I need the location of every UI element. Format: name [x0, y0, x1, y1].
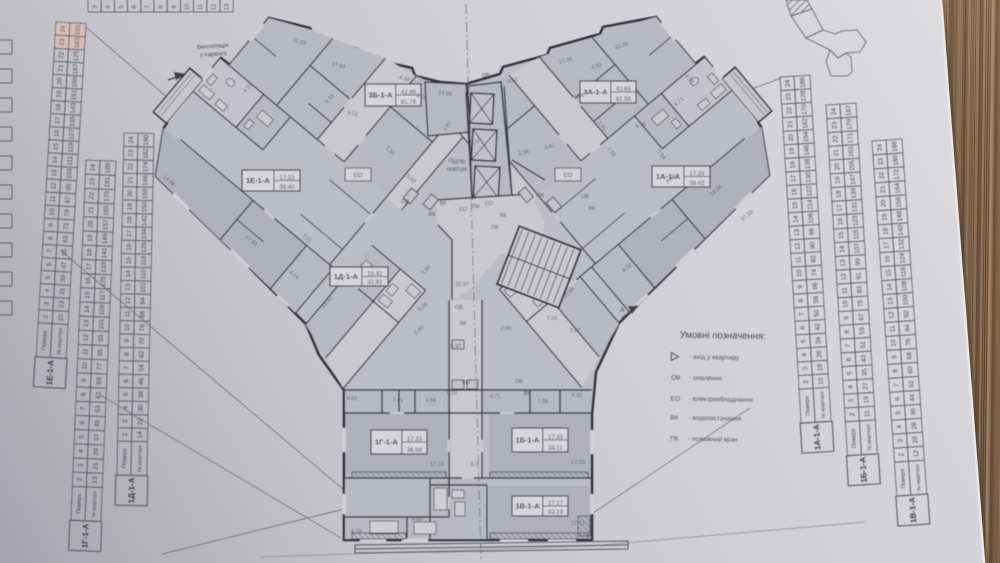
- svg-text:12: 12: [794, 242, 801, 250]
- svg-text:10: 10: [818, 377, 825, 385]
- svg-text:19: 19: [56, 90, 63, 98]
- svg-text:116: 116: [900, 266, 908, 277]
- svg-text:18: 18: [86, 248, 93, 256]
- svg-text:10: 10: [796, 269, 803, 277]
- svg-text:1Е-1-А: 1Е-1-А: [45, 359, 56, 385]
- svg-text:23: 23: [785, 93, 792, 101]
- svg-text:21: 21: [57, 64, 64, 72]
- svg-text:100: 100: [902, 294, 910, 306]
- svg-text:181: 181: [104, 176, 111, 188]
- svg-text:8: 8: [124, 352, 131, 356]
- svg-text:110: 110: [140, 269, 147, 280]
- svg-text:11: 11: [50, 195, 57, 203]
- svg-text:170: 170: [801, 104, 809, 116]
- svg-text:15.42: 15.42: [367, 271, 383, 277]
- svg-text:ЕО: ЕО: [564, 173, 573, 179]
- svg-text:165: 165: [103, 205, 110, 217]
- svg-text:43.19: 43.19: [548, 510, 564, 516]
- svg-text:150: 150: [142, 201, 149, 212]
- svg-text:2.96: 2.96: [501, 326, 512, 332]
- svg-text:20: 20: [127, 189, 134, 197]
- svg-text:Умовні позначення:: Умовні позначення:: [680, 330, 766, 342]
- svg-text:22: 22: [137, 417, 144, 425]
- svg-text:ОВ: ОВ: [581, 194, 589, 200]
- svg-text:45: 45: [94, 419, 101, 427]
- svg-text:21: 21: [88, 206, 95, 214]
- svg-text:19: 19: [127, 203, 134, 211]
- svg-text:16: 16: [126, 243, 133, 251]
- svg-text:159: 159: [71, 76, 79, 88]
- svg-text:24: 24: [784, 79, 791, 87]
- svg-text:47: 47: [61, 261, 68, 269]
- svg-text:34: 34: [815, 336, 822, 344]
- svg-text:7: 7: [80, 406, 87, 410]
- svg-text:17.17: 17.17: [548, 501, 564, 507]
- svg-text:23: 23: [877, 157, 885, 165]
- svg-text:3А-1-А: 3А-1-А: [583, 88, 608, 97]
- svg-text:126: 126: [141, 241, 148, 252]
- svg-text:- водопостачання: - водопостачання: [688, 415, 741, 423]
- svg-text:43: 43: [861, 354, 868, 362]
- svg-text:51: 51: [860, 340, 867, 348]
- svg-text:повітря: повітря: [447, 167, 467, 173]
- svg-text:23: 23: [128, 149, 135, 157]
- svg-text:6.09: 6.09: [447, 391, 458, 397]
- svg-text:14: 14: [125, 270, 132, 278]
- svg-text:63: 63: [62, 235, 69, 243]
- svg-text:2.67: 2.67: [570, 328, 581, 334]
- svg-text:163: 163: [848, 146, 856, 158]
- svg-text:ВК: ВК: [440, 201, 448, 207]
- svg-text:7.34: 7.34: [547, 316, 558, 322]
- svg-text:83: 83: [856, 285, 863, 293]
- svg-text:16: 16: [884, 255, 892, 263]
- svg-text:60: 60: [907, 366, 915, 374]
- svg-text:13: 13: [125, 283, 132, 291]
- svg-text:23: 23: [59, 38, 66, 46]
- svg-text:91: 91: [855, 272, 862, 280]
- svg-text:115: 115: [853, 229, 861, 240]
- svg-text:14: 14: [137, 431, 144, 439]
- svg-text:147: 147: [849, 173, 857, 185]
- svg-text:6: 6: [79, 420, 86, 424]
- svg-text:ВК: ВК: [589, 206, 597, 212]
- svg-text:13: 13: [51, 169, 58, 177]
- svg-text:11: 11: [795, 256, 802, 264]
- svg-text:12: 12: [125, 297, 132, 305]
- svg-text:1Д-1-А: 1Д-1-А: [334, 272, 359, 281]
- svg-text:14: 14: [84, 305, 91, 313]
- svg-text:53: 53: [95, 405, 102, 413]
- svg-text:42.65: 42.65: [616, 87, 632, 93]
- svg-text:111: 111: [67, 155, 75, 166]
- svg-text:4.70: 4.70: [351, 529, 362, 535]
- svg-text:17: 17: [86, 263, 93, 271]
- svg-text:ПК: ПК: [472, 204, 480, 210]
- svg-text:№ квартири: № квартири: [137, 445, 144, 472]
- svg-text:19: 19: [863, 396, 870, 404]
- svg-text:ЕО: ЕО: [462, 380, 471, 386]
- svg-text:ОВ: ОВ: [401, 199, 409, 205]
- svg-text:36: 36: [910, 408, 918, 416]
- svg-text:19: 19: [881, 213, 889, 221]
- svg-text:85: 85: [97, 348, 104, 356]
- svg-text:ВК: ВК: [670, 414, 678, 421]
- svg-text:7: 7: [123, 365, 130, 369]
- svg-text:11: 11: [864, 410, 871, 418]
- svg-text:26: 26: [816, 350, 823, 358]
- svg-text:1Г-1-А: 1Г-1-А: [80, 523, 90, 548]
- svg-text:31: 31: [59, 287, 66, 295]
- svg-text:55: 55: [61, 248, 68, 256]
- svg-text:24: 24: [128, 136, 135, 144]
- svg-text:164: 164: [894, 182, 902, 194]
- svg-text:24: 24: [90, 163, 97, 171]
- svg-text:92: 92: [903, 310, 911, 318]
- svg-text:131: 131: [851, 201, 859, 213]
- svg-text:24: 24: [830, 107, 837, 115]
- svg-text:138: 138: [804, 158, 812, 170]
- svg-text:ВК: ВК: [429, 212, 437, 218]
- svg-text:17: 17: [790, 174, 797, 182]
- svg-text:108: 108: [901, 280, 909, 292]
- svg-text:12: 12: [888, 311, 896, 319]
- svg-text:А: А: [620, 307, 625, 314]
- svg-text:1Б-1-А: 1Б-1-А: [858, 456, 869, 482]
- svg-text:23: 23: [831, 121, 838, 129]
- svg-text:15: 15: [885, 269, 893, 277]
- svg-text:1Е-1-А: 1Е-1-А: [246, 176, 270, 185]
- svg-text:188: 188: [891, 140, 899, 152]
- svg-text:20: 20: [56, 77, 63, 85]
- svg-text:103: 103: [66, 168, 74, 180]
- svg-text:84: 84: [904, 324, 912, 332]
- svg-text:19: 19: [789, 147, 796, 155]
- svg-text:67: 67: [858, 313, 865, 321]
- svg-text:38: 38: [138, 391, 145, 399]
- svg-text:7.01: 7.01: [393, 398, 404, 404]
- svg-text:174: 174: [142, 161, 149, 172]
- svg-text:132: 132: [898, 238, 906, 250]
- svg-text:10: 10: [49, 208, 56, 216]
- svg-text:118: 118: [140, 255, 147, 266]
- svg-text:18: 18: [882, 227, 890, 235]
- svg-text:90: 90: [809, 241, 816, 249]
- svg-text:4.62: 4.62: [347, 396, 358, 402]
- svg-text:ОВ: ОВ: [455, 305, 463, 311]
- svg-text:119: 119: [67, 142, 75, 153]
- svg-text:12: 12: [50, 182, 57, 190]
- svg-text:191: 191: [74, 24, 82, 36]
- svg-text:5: 5: [123, 392, 130, 396]
- svg-text:180: 180: [892, 154, 900, 166]
- svg-text:93: 93: [98, 334, 105, 342]
- svg-text:114: 114: [807, 199, 815, 210]
- svg-text:Поверх: Поверх: [42, 330, 49, 350]
- svg-text:3Б-1-А: 3Б-1-А: [368, 91, 393, 100]
- svg-text:9: 9: [124, 339, 131, 343]
- svg-text:13: 13: [887, 297, 895, 305]
- svg-text:141: 141: [101, 247, 108, 259]
- svg-text:- пожежний кран: - пожежний кран: [688, 435, 738, 444]
- svg-text:82: 82: [810, 255, 817, 263]
- svg-text:17: 17: [54, 116, 61, 124]
- svg-text:44: 44: [909, 394, 917, 402]
- svg-text:29: 29: [93, 448, 100, 456]
- svg-text:87: 87: [64, 196, 71, 204]
- svg-text:98: 98: [808, 228, 815, 236]
- svg-text:22: 22: [58, 51, 65, 59]
- svg-text:ПК: ПК: [670, 435, 679, 442]
- svg-text:35: 35: [861, 368, 868, 376]
- svg-text:71: 71: [63, 222, 70, 230]
- svg-text:ОВ: ОВ: [482, 73, 490, 79]
- svg-text:135: 135: [69, 115, 77, 127]
- svg-text:30: 30: [137, 404, 144, 412]
- svg-text:Поверх: Поверх: [76, 494, 83, 514]
- svg-text:6: 6: [123, 379, 130, 383]
- svg-text:22: 22: [89, 192, 96, 200]
- svg-text:12: 12: [211, 3, 217, 10]
- svg-text:Підпір: Підпір: [448, 159, 466, 165]
- svg-text:4.56: 4.56: [426, 398, 437, 404]
- svg-text:146: 146: [803, 144, 811, 156]
- svg-text:81.76: 81.76: [401, 100, 417, 106]
- svg-text:95: 95: [65, 183, 72, 191]
- svg-text:21: 21: [879, 185, 887, 193]
- svg-text:11: 11: [198, 3, 204, 10]
- svg-text:38.62: 38.62: [689, 181, 705, 187]
- svg-text:21: 21: [127, 176, 134, 184]
- svg-text:36.40: 36.40: [279, 185, 295, 191]
- svg-text:20: 20: [834, 162, 841, 170]
- svg-text:15: 15: [57, 313, 64, 321]
- svg-text:156: 156: [895, 196, 903, 208]
- svg-text:54: 54: [138, 364, 145, 372]
- svg-text:124: 124: [899, 252, 907, 264]
- svg-text:6.0: 6.0: [471, 462, 479, 468]
- svg-text:143: 143: [70, 102, 78, 114]
- svg-text:24: 24: [876, 143, 884, 151]
- svg-text:117: 117: [99, 290, 106, 301]
- svg-text:10: 10: [81, 362, 88, 370]
- svg-text:102: 102: [140, 282, 147, 293]
- svg-text:140: 140: [897, 224, 905, 236]
- svg-text:19: 19: [87, 234, 94, 242]
- svg-text:50: 50: [813, 309, 820, 317]
- svg-text:149: 149: [102, 233, 109, 245]
- svg-text:101: 101: [98, 318, 105, 330]
- svg-text:37: 37: [93, 433, 100, 441]
- svg-text:17.33: 17.33: [407, 437, 423, 443]
- svg-text:179: 179: [846, 118, 854, 130]
- svg-text:66: 66: [812, 282, 819, 290]
- svg-text:17.33: 17.33: [689, 171, 705, 177]
- svg-text:32.81: 32.81: [367, 280, 383, 286]
- svg-text:24: 24: [60, 25, 67, 33]
- svg-text:10: 10: [890, 339, 898, 347]
- svg-text:18: 18: [789, 161, 796, 169]
- svg-text:38.11: 38.11: [548, 446, 563, 452]
- svg-text:70: 70: [139, 337, 146, 345]
- svg-text:18: 18: [55, 103, 62, 111]
- svg-text:13: 13: [225, 3, 231, 10]
- svg-text:107: 107: [854, 242, 862, 254]
- svg-text:16: 16: [53, 129, 60, 137]
- svg-text:20: 20: [912, 435, 920, 443]
- svg-text:9.99: 9.99: [412, 517, 423, 523]
- svg-text:17.33: 17.33: [279, 175, 295, 181]
- svg-text:61: 61: [95, 391, 102, 399]
- svg-text:Поверх: Поверх: [122, 448, 128, 468]
- svg-text:148: 148: [896, 210, 904, 222]
- svg-text:12: 12: [913, 449, 921, 457]
- svg-text:187: 187: [845, 104, 853, 116]
- svg-text:74: 74: [811, 268, 818, 276]
- svg-text:154: 154: [803, 131, 811, 143]
- svg-text:86: 86: [139, 310, 146, 318]
- svg-text:18: 18: [835, 190, 842, 198]
- svg-text:20: 20: [87, 220, 94, 228]
- svg-text:69: 69: [96, 377, 103, 385]
- svg-text:166: 166: [142, 174, 149, 185]
- svg-text:Поверх: Поверх: [851, 428, 858, 448]
- svg-text:ВК: ВК: [524, 391, 532, 397]
- svg-text:14.58: 14.58: [438, 90, 452, 97]
- svg-text:ЕО: ЕО: [459, 207, 468, 213]
- svg-text:№ квартири: № квартири: [91, 491, 98, 518]
- svg-text:123: 123: [852, 215, 860, 227]
- svg-text:11: 11: [841, 287, 848, 295]
- svg-text:16: 16: [837, 217, 844, 225]
- svg-text:183: 183: [74, 37, 82, 49]
- svg-text:58: 58: [813, 295, 820, 303]
- svg-text:9: 9: [81, 378, 88, 382]
- svg-text:133: 133: [100, 261, 107, 273]
- svg-text:ВК: ВК: [500, 213, 508, 219]
- svg-text:17: 17: [883, 241, 891, 249]
- svg-text:42: 42: [814, 323, 821, 331]
- svg-text:22: 22: [127, 163, 134, 171]
- svg-text:134: 134: [141, 228, 148, 239]
- svg-text:68: 68: [906, 352, 914, 360]
- svg-text:22: 22: [786, 106, 793, 114]
- svg-text:106: 106: [808, 212, 816, 224]
- svg-text:78: 78: [139, 324, 146, 332]
- svg-text:16: 16: [85, 277, 92, 285]
- svg-text:15: 15: [125, 256, 132, 264]
- svg-text:1В-1-А: 1В-1-А: [515, 502, 540, 511]
- svg-text:14: 14: [793, 215, 800, 223]
- svg-text:59: 59: [859, 327, 866, 335]
- svg-text:11: 11: [124, 310, 131, 317]
- svg-text:Поверх: Поверх: [805, 396, 812, 416]
- svg-text:19: 19: [835, 176, 842, 184]
- svg-text:175: 175: [73, 50, 81, 62]
- svg-text:15: 15: [792, 201, 799, 209]
- svg-text:23: 23: [89, 177, 96, 185]
- svg-text:ОВ: ОВ: [536, 193, 544, 199]
- svg-text:109: 109: [99, 304, 106, 316]
- svg-text:1Д-1-А: 1Д-1-А: [127, 477, 137, 503]
- svg-text:75: 75: [857, 299, 864, 307]
- svg-text:ЕО: ЕО: [671, 395, 681, 402]
- svg-text:52: 52: [908, 380, 916, 388]
- svg-text:178: 178: [800, 90, 808, 102]
- svg-text:4: 4: [122, 406, 129, 410]
- svg-text:125: 125: [100, 276, 107, 288]
- svg-text:5.97: 5.97: [451, 344, 462, 350]
- svg-text:20: 20: [788, 133, 795, 141]
- svg-text:39: 39: [60, 274, 67, 282]
- svg-text:18: 18: [817, 363, 824, 371]
- svg-text:17: 17: [836, 204, 843, 212]
- svg-text:10: 10: [842, 300, 849, 308]
- svg-text:- електрообладнання: - електрообладнання: [689, 395, 754, 404]
- svg-text:4: 4: [78, 449, 85, 453]
- svg-text:3: 3: [77, 463, 84, 467]
- svg-text:14: 14: [52, 156, 59, 164]
- svg-text:130: 130: [805, 171, 813, 183]
- svg-text:5: 5: [79, 435, 86, 439]
- svg-text:4.71: 4.71: [490, 394, 501, 400]
- svg-text:15: 15: [84, 291, 91, 299]
- svg-text:13: 13: [83, 319, 90, 327]
- svg-text:36.58: 36.58: [407, 448, 423, 454]
- svg-text:162: 162: [802, 117, 810, 129]
- svg-text:182: 182: [143, 148, 150, 159]
- svg-text:ОВ: ОВ: [515, 379, 523, 385]
- svg-text:155: 155: [849, 160, 857, 172]
- svg-text:186: 186: [799, 76, 807, 88]
- svg-text:- вхід у квартиру: - вхід у квартиру: [689, 353, 739, 362]
- svg-text:171: 171: [847, 132, 855, 144]
- svg-text:21: 21: [787, 120, 794, 128]
- svg-text:17: 17: [126, 230, 133, 238]
- svg-text:21: 21: [92, 462, 99, 470]
- svg-text:94: 94: [140, 297, 147, 305]
- svg-text:2: 2: [122, 432, 129, 436]
- svg-text:ЕО: ЕО: [485, 201, 494, 207]
- svg-text:28: 28: [911, 421, 919, 429]
- svg-text:167: 167: [72, 63, 80, 75]
- svg-text:151: 151: [71, 89, 79, 101]
- svg-text:42.85: 42.85: [401, 90, 417, 96]
- svg-text:1Б-1-А: 1Б-1-А: [515, 436, 540, 445]
- svg-text:189: 189: [105, 162, 112, 174]
- svg-text:13: 13: [840, 259, 847, 267]
- svg-text:7.95: 7.95: [538, 399, 549, 405]
- svg-text:190: 190: [143, 134, 150, 145]
- svg-text:8: 8: [80, 392, 87, 396]
- svg-text:ЕО: ЕО: [354, 173, 363, 179]
- svg-text:21: 21: [833, 149, 840, 157]
- svg-text:ПК: ПК: [491, 225, 499, 231]
- svg-text:15: 15: [53, 142, 60, 150]
- svg-text:22: 22: [832, 135, 839, 143]
- svg-text:157: 157: [102, 219, 109, 231]
- svg-text:81.58: 81.58: [616, 97, 632, 103]
- svg-text:76: 76: [905, 338, 913, 346]
- svg-text:127: 127: [68, 128, 76, 140]
- svg-text:23: 23: [58, 300, 65, 308]
- svg-text:62: 62: [138, 350, 145, 358]
- svg-text:ОВ: ОВ: [671, 374, 681, 381]
- svg-text:22: 22: [878, 171, 886, 179]
- svg-text:142: 142: [141, 215, 148, 226]
- svg-text:13: 13: [92, 476, 99, 484]
- svg-text:11: 11: [82, 348, 89, 355]
